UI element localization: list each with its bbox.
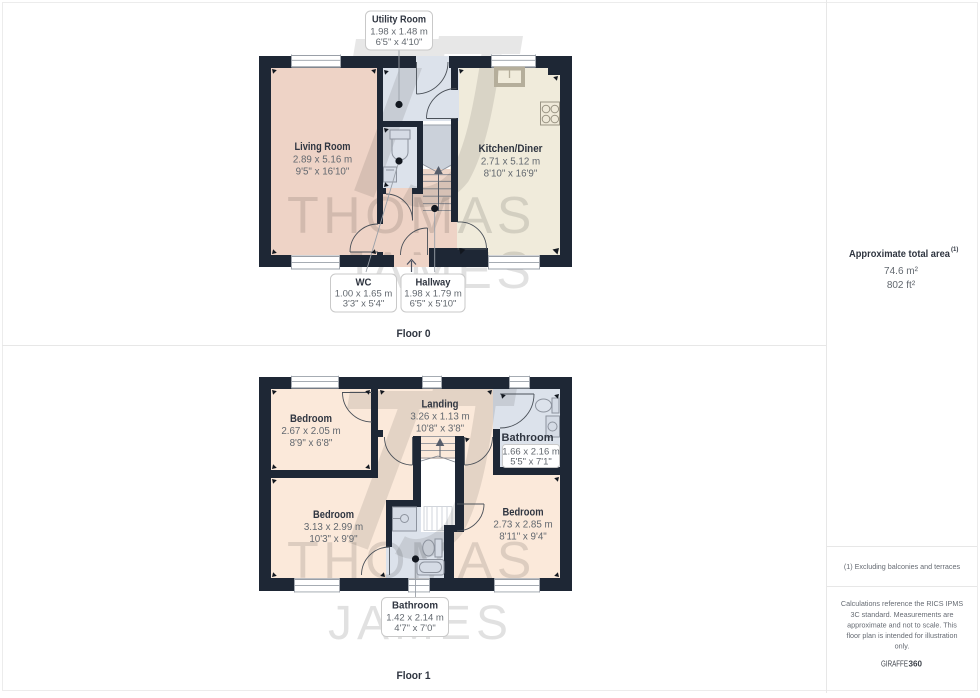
- svg-text:GIRAFFE: GIRAFFE: [881, 659, 908, 669]
- svg-text:Bedroom: Bedroom: [290, 413, 332, 425]
- svg-text:Approximate total area: Approximate total area: [849, 248, 950, 260]
- svg-text:10'3" x 9'9": 10'3" x 9'9": [309, 534, 358, 545]
- svg-text:Bedroom: Bedroom: [313, 509, 354, 521]
- svg-text:6'5" x 5'10": 6'5" x 5'10": [410, 299, 457, 310]
- svg-text:Hallway: Hallway: [416, 277, 451, 289]
- svg-text:WC: WC: [356, 277, 372, 289]
- svg-text:8'10" x 16'9": 8'10" x 16'9": [484, 169, 538, 180]
- svg-text:Living Room: Living Room: [295, 141, 351, 153]
- svg-text:5'5" x 7'1": 5'5" x 7'1": [510, 457, 552, 468]
- svg-text:Utility Room: Utility Room: [372, 14, 426, 26]
- svg-text:8'11" x 9'4": 8'11" x 9'4": [499, 532, 547, 543]
- svg-text:Bedroom: Bedroom: [503, 507, 544, 519]
- svg-text:3.26 x 1.13 m: 3.26 x 1.13 m: [410, 412, 469, 423]
- svg-text:74.6 m²: 74.6 m²: [884, 266, 919, 277]
- svg-text:2.67 x 2.05 m: 2.67 x 2.05 m: [281, 426, 340, 437]
- svg-text:Floor 1: Floor 1: [397, 670, 431, 682]
- svg-text:approximate and not to scale.: approximate and not to scale. This: [847, 621, 957, 630]
- svg-text:360: 360: [909, 659, 923, 669]
- svg-text:3C standard. Measurements are: 3C standard. Measurements are: [850, 610, 953, 619]
- svg-text:9'5" x 16'10": 9'5" x 16'10": [296, 167, 350, 178]
- svg-text:6'5" x 4'10": 6'5" x 4'10": [376, 37, 423, 48]
- svg-text:(1) Excluding balconies and te: (1) Excluding balconies and terraces: [844, 562, 961, 571]
- svg-text:floor plan is intended for ill: floor plan is intended for illustration: [846, 631, 957, 640]
- svg-text:1.42 x 2.14 m: 1.42 x 2.14 m: [386, 613, 444, 624]
- svg-text:Kitchen/Diner: Kitchen/Diner: [479, 143, 544, 155]
- svg-text:8'9" x 6'8": 8'9" x 6'8": [290, 438, 333, 449]
- svg-text:Bathroom: Bathroom: [392, 600, 438, 612]
- svg-text:Bathroom: Bathroom: [502, 432, 554, 444]
- svg-text:Calculations reference the RIC: Calculations reference the RICS IPMS: [841, 599, 963, 608]
- svg-text:3.13 x 2.99 m: 3.13 x 2.99 m: [304, 522, 363, 533]
- svg-text:3'3" x 5'4": 3'3" x 5'4": [343, 299, 385, 310]
- svg-text:(1): (1): [951, 247, 958, 253]
- svg-text:802 ft²: 802 ft²: [887, 280, 916, 291]
- svg-text:4'7" x 7'0": 4'7" x 7'0": [394, 623, 436, 634]
- svg-text:Landing: Landing: [422, 399, 459, 411]
- svg-text:10'8" x 3'8": 10'8" x 3'8": [416, 424, 465, 435]
- svg-text:only.: only.: [895, 642, 910, 651]
- svg-text:Floor 0: Floor 0: [397, 328, 431, 340]
- svg-text:2.73 x 2.85 m: 2.73 x 2.85 m: [493, 520, 552, 531]
- svg-text:2.71 x 5.12 m: 2.71 x 5.12 m: [481, 157, 540, 168]
- svg-text:1.98 x 1.48 m: 1.98 x 1.48 m: [370, 27, 428, 38]
- svg-text:THOMAS: THOMAS: [287, 187, 536, 245]
- svg-text:2.89 x 5.16 m: 2.89 x 5.16 m: [293, 155, 352, 166]
